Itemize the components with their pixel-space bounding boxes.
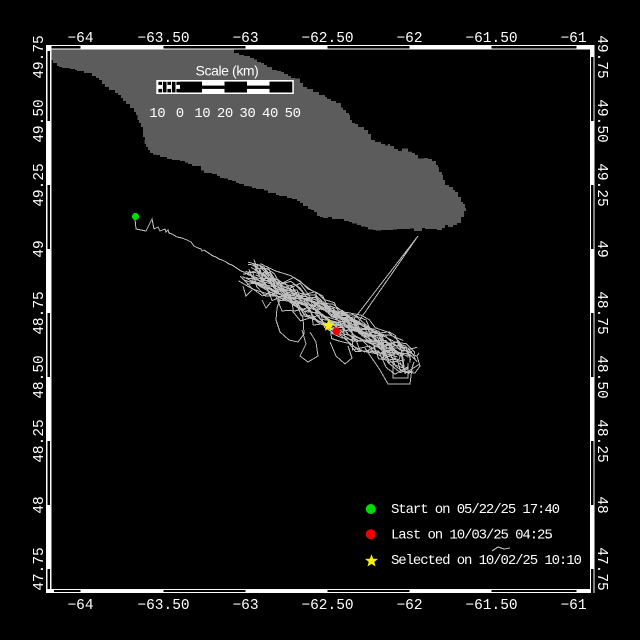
svg-text:−61: −61 [560, 31, 586, 47]
svg-text:−61: −61 [560, 598, 586, 614]
svg-text:48.50: 48.50 [32, 355, 48, 399]
svg-text:48.25: 48.25 [593, 419, 609, 463]
svg-text:−62.50: −62.50 [301, 31, 353, 47]
svg-text:20: 20 [217, 106, 233, 122]
svg-text:48.50: 48.50 [593, 355, 609, 399]
svg-text:−62: −62 [396, 31, 422, 47]
svg-text:49: 49 [32, 240, 48, 257]
svg-text:47.75: 47.75 [593, 547, 609, 591]
svg-text:−63: −63 [232, 31, 258, 47]
svg-text:−62.50: −62.50 [301, 598, 353, 614]
svg-text:Scale (km): Scale (km) [196, 63, 259, 79]
svg-text:−61.50: −61.50 [465, 31, 517, 47]
svg-text:Last on 10/03/25 04:25: Last on 10/03/25 04:25 [391, 528, 552, 544]
svg-text:10: 10 [194, 106, 210, 122]
svg-text:48: 48 [593, 496, 609, 513]
svg-text:49.50: 49.50 [593, 99, 609, 143]
svg-text:−61.50: −61.50 [465, 598, 517, 614]
svg-text:48.75: 48.75 [32, 291, 48, 335]
svg-text:48.75: 48.75 [593, 291, 609, 335]
svg-text:48.25: 48.25 [32, 419, 48, 463]
svg-text:−63.50: −63.50 [137, 598, 189, 614]
svg-text:Start on 05/22/25 17:40: Start on 05/22/25 17:40 [391, 502, 560, 518]
svg-text:Selected on 10/02/25 10:10: Selected on 10/02/25 10:10 [391, 553, 582, 569]
svg-text:10: 10 [149, 106, 165, 122]
svg-text:48: 48 [32, 496, 48, 513]
svg-text:−63.50: −63.50 [137, 31, 189, 47]
svg-text:49.25: 49.25 [593, 163, 609, 207]
svg-text:40: 40 [262, 106, 278, 122]
svg-text:30: 30 [239, 106, 255, 122]
svg-text:−62: −62 [396, 598, 422, 614]
svg-text:−63: −63 [232, 598, 258, 614]
svg-text:49.75: 49.75 [32, 35, 48, 79]
svg-text:50: 50 [285, 106, 301, 122]
svg-text:49: 49 [593, 240, 609, 257]
svg-text:0: 0 [176, 106, 184, 122]
svg-text:49.75: 49.75 [593, 35, 609, 79]
svg-text:49.50: 49.50 [32, 99, 48, 143]
svg-text:−64: −64 [67, 598, 93, 614]
svg-text:−64: −64 [67, 31, 93, 47]
svg-text:49.25: 49.25 [32, 163, 48, 207]
svg-text:47.75: 47.75 [32, 547, 48, 591]
